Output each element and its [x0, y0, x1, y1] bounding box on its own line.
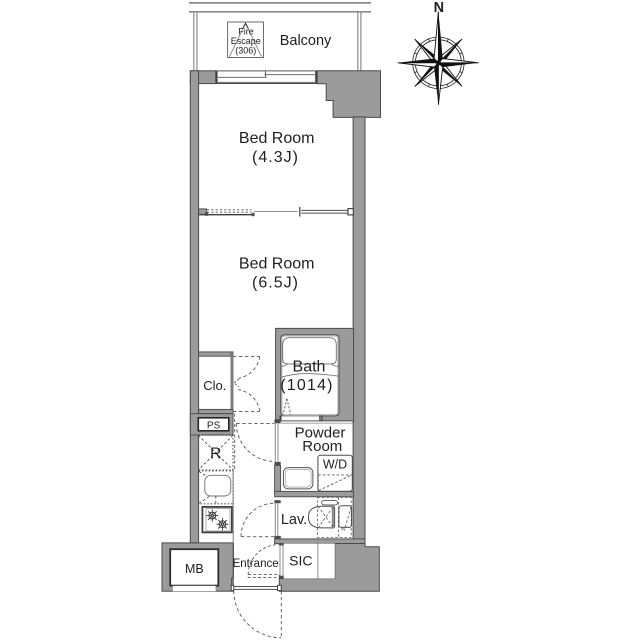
svg-text:Room: Room — [302, 438, 342, 455]
svg-text:PS: PS — [207, 420, 221, 431]
svg-text:N: N — [434, 0, 444, 16]
svg-text:R: R — [210, 446, 221, 463]
svg-text:W/D: W/D — [323, 458, 347, 472]
svg-text:Entrance: Entrance — [233, 558, 279, 570]
svg-text:SIC: SIC — [289, 553, 312, 569]
svg-text:(306): (306) — [235, 46, 256, 56]
svg-text:Bed Room: Bed Room — [239, 130, 315, 147]
svg-text:(1014): (1014) — [280, 377, 333, 394]
svg-text:Balcony: Balcony — [280, 33, 332, 49]
svg-text:Lav.: Lav. — [281, 512, 307, 528]
svg-text:Bath: Bath — [293, 359, 326, 376]
svg-text:(6.5J): (6.5J) — [252, 275, 299, 292]
svg-text:(4.3J): (4.3J) — [252, 149, 299, 166]
svg-text:MB: MB — [185, 562, 204, 576]
svg-text:Bed Room: Bed Room — [239, 256, 315, 273]
svg-text:Fire: Fire — [238, 27, 254, 37]
svg-text:Clo.: Clo. — [203, 378, 226, 393]
svg-text:Escape: Escape — [231, 36, 261, 46]
